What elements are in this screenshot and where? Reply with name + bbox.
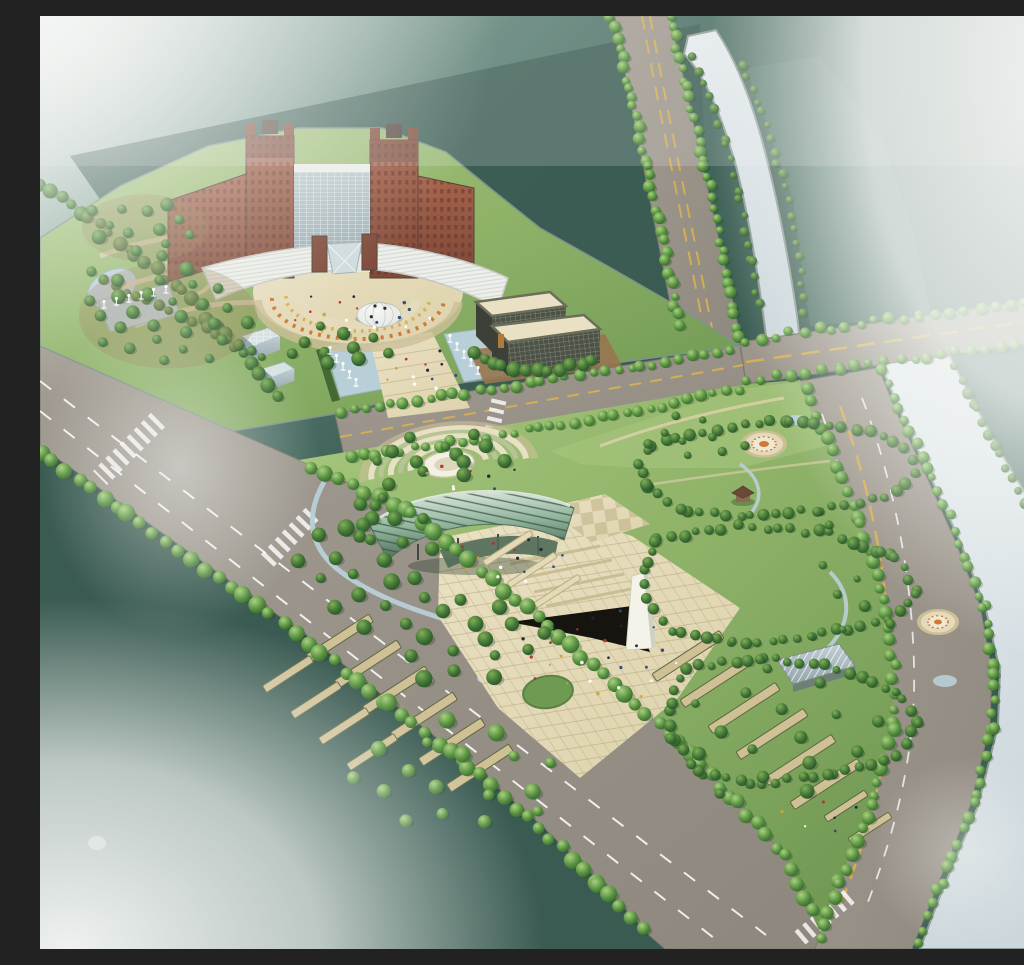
aerial-rendering — [40, 16, 1024, 949]
pedestrian — [834, 830, 837, 833]
mist-bottom-right — [870, 756, 1024, 949]
pedestrian — [619, 666, 622, 669]
mist-top-veil — [40, 16, 1024, 166]
pedestrian — [780, 810, 783, 813]
pedestrian — [620, 624, 623, 627]
pedestrian — [619, 609, 622, 612]
pedestrian — [635, 644, 638, 647]
pedestrian — [603, 639, 606, 642]
pedestrian — [833, 817, 835, 819]
pedestrian — [487, 475, 490, 478]
pedestrian — [607, 656, 610, 659]
pedestrian — [440, 465, 444, 469]
pedestrian — [822, 801, 825, 804]
pedestrian — [426, 472, 429, 475]
mist-left-mid — [40, 296, 320, 636]
pedestrian — [513, 469, 515, 471]
pedestrian — [469, 470, 471, 472]
pedestrian — [493, 487, 496, 490]
pedestrian — [855, 806, 858, 809]
pedestrian — [617, 686, 620, 689]
pedestrian — [804, 825, 806, 827]
pedestrian — [452, 487, 455, 490]
